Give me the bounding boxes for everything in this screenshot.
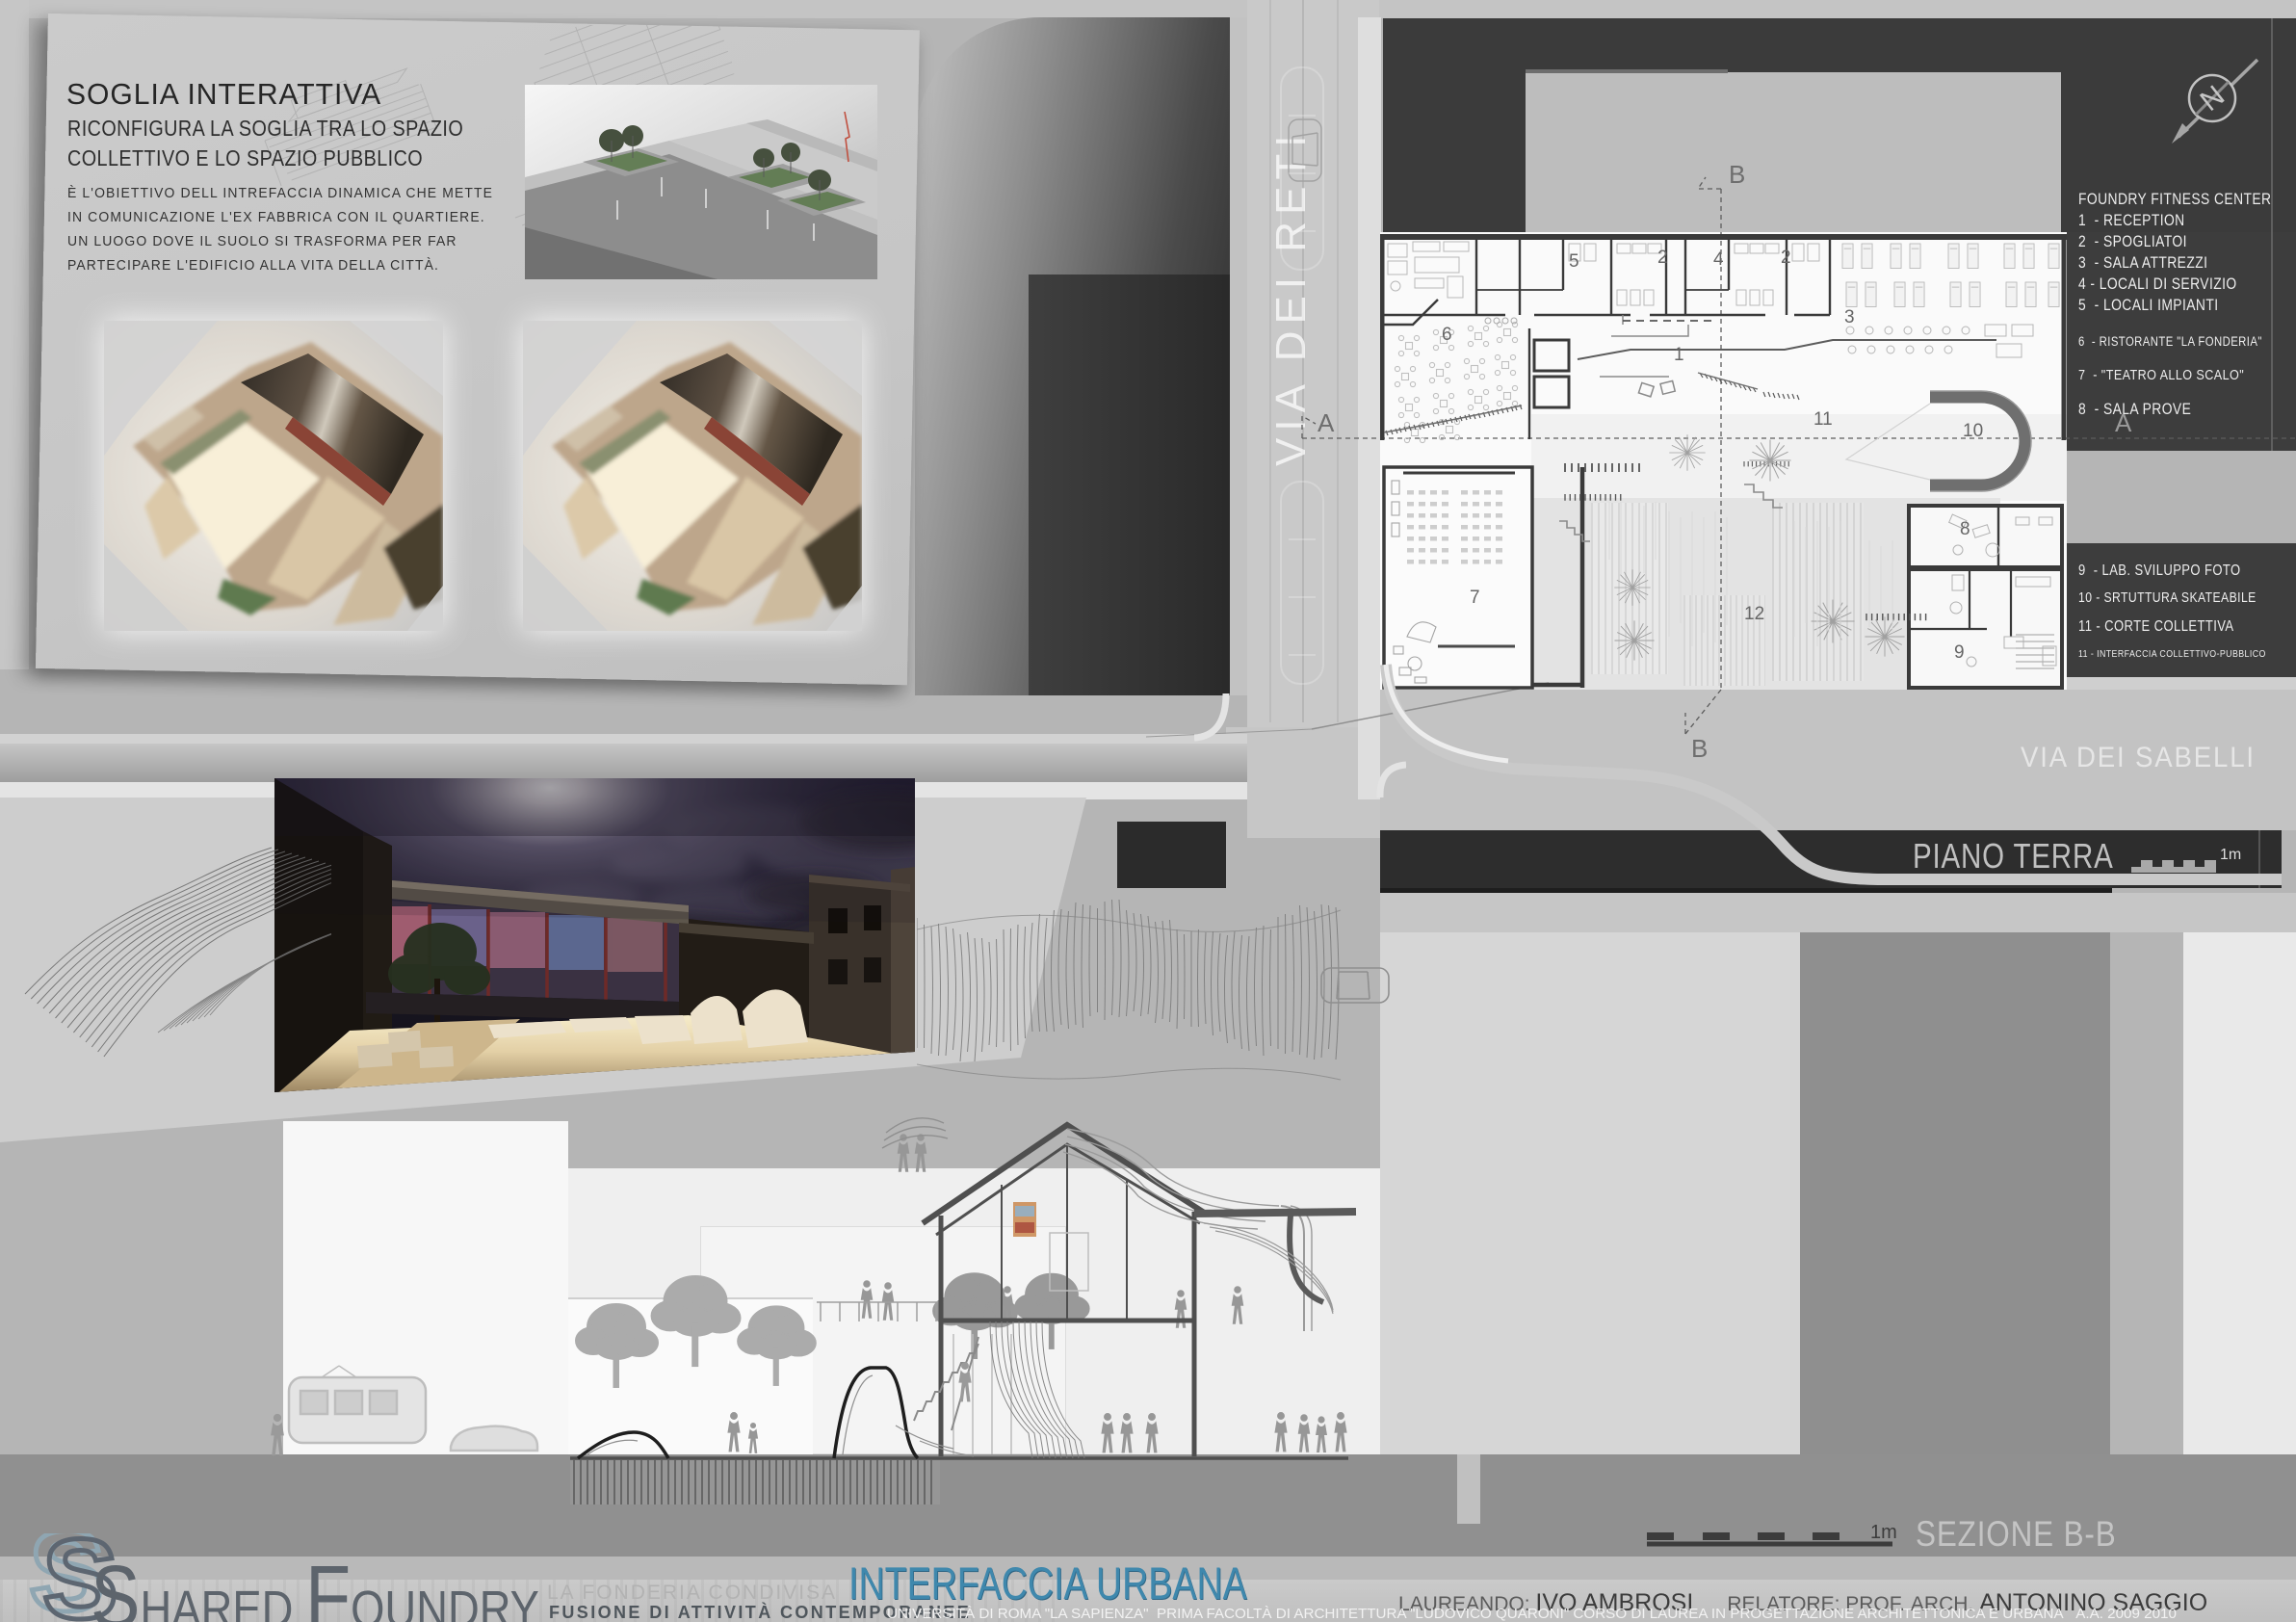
svg-text:7: 7 (1470, 588, 1480, 608)
svg-text:6: 6 (1442, 325, 1452, 345)
svg-text:12: 12 (1744, 604, 1764, 624)
svg-text:4: 4 (1713, 249, 1724, 270)
svg-text:2: 2 (1657, 248, 1668, 268)
svg-text:1: 1 (1674, 345, 1684, 365)
svg-text:A: A (2115, 408, 2132, 437)
svg-text:8: 8 (1960, 519, 1970, 539)
svg-text:5: 5 (1569, 251, 1579, 272)
svg-text:11: 11 (1813, 409, 1833, 430)
svg-text:10: 10 (1963, 421, 1983, 441)
svg-text:B: B (1729, 160, 1745, 189)
svg-text:3: 3 (1844, 307, 1855, 327)
svg-text:1m: 1m (1870, 1525, 1897, 1543)
svg-text:2: 2 (1781, 248, 1791, 268)
